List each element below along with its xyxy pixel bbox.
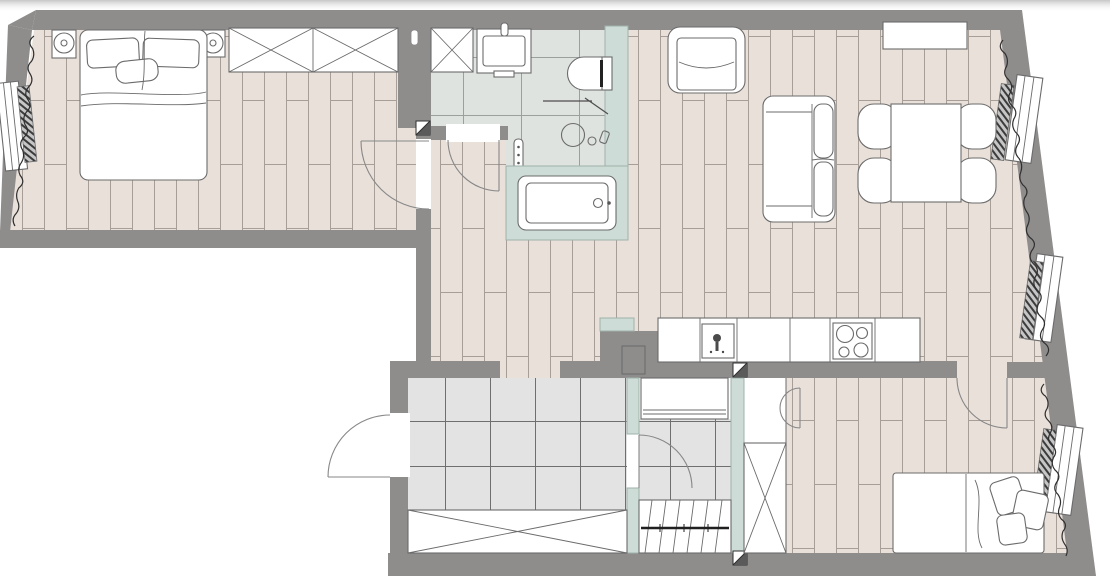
service-shaft	[600, 331, 658, 378]
bedroom1-bottom-wall	[0, 230, 431, 248]
bathtub-faucet-dot	[607, 201, 611, 205]
bathroom-door-opening	[446, 124, 500, 142]
top-wall	[32, 10, 1022, 30]
nightstand-left	[52, 30, 76, 58]
single-bed	[893, 473, 1049, 553]
bedroom2-door-threshold	[957, 361, 1007, 378]
entrance-door-opening	[388, 413, 410, 477]
pillow	[996, 512, 1028, 546]
kitchen-faucet-stem	[716, 342, 719, 351]
wall-vent-slot	[411, 30, 418, 45]
washing-machine	[431, 28, 473, 72]
corridor-floor	[431, 140, 506, 368]
kitchen-teal-cap	[600, 318, 634, 331]
entrance-door	[328, 415, 390, 477]
teal-partition-stair-bedroom2	[731, 378, 744, 553]
toilet	[568, 57, 613, 90]
marker-corridor	[416, 121, 430, 135]
toilet-seat-line	[600, 60, 603, 87]
armchair	[668, 27, 745, 93]
kitchen	[658, 318, 920, 362]
throw-pillow	[115, 58, 159, 84]
basin-ledge	[494, 71, 514, 77]
floor-plan-svg	[0, 0, 1110, 580]
kitchen-faucet-icon	[713, 334, 721, 342]
corridor-left-wall	[416, 209, 431, 367]
bathtub-outer	[518, 176, 616, 230]
floor-plan-canvas	[0, 0, 1110, 580]
bathtub	[506, 166, 628, 240]
dining-chair	[956, 158, 996, 203]
staircase-down	[639, 500, 731, 553]
sofa	[763, 96, 835, 222]
stair-room-floor	[639, 419, 731, 500]
dining-chair	[956, 104, 996, 149]
teal-pillar-upper	[627, 378, 639, 434]
double-bed	[80, 30, 207, 180]
wardrobe-box	[229, 28, 398, 72]
hall-floor	[408, 378, 627, 510]
toilet-bowl	[568, 57, 603, 90]
hall-opening-floor	[500, 361, 560, 378]
basin-faucet-icon	[501, 23, 508, 36]
coat-closet	[641, 378, 728, 419]
hall-closet	[408, 510, 627, 553]
sideboard	[883, 22, 967, 49]
bedroom1-wardrobe	[229, 28, 398, 72]
dining-table	[891, 104, 961, 202]
marker-kitchen-wall	[733, 363, 747, 377]
door-swing-arc	[328, 415, 390, 477]
bedroom2-wardrobe	[744, 443, 786, 553]
kitchen-counter	[658, 318, 920, 362]
hall-top-wall-left	[408, 361, 500, 378]
bedroom2-door-wall	[1007, 362, 1052, 378]
teal-pillar-lower	[627, 488, 639, 553]
washbasin	[477, 23, 531, 77]
